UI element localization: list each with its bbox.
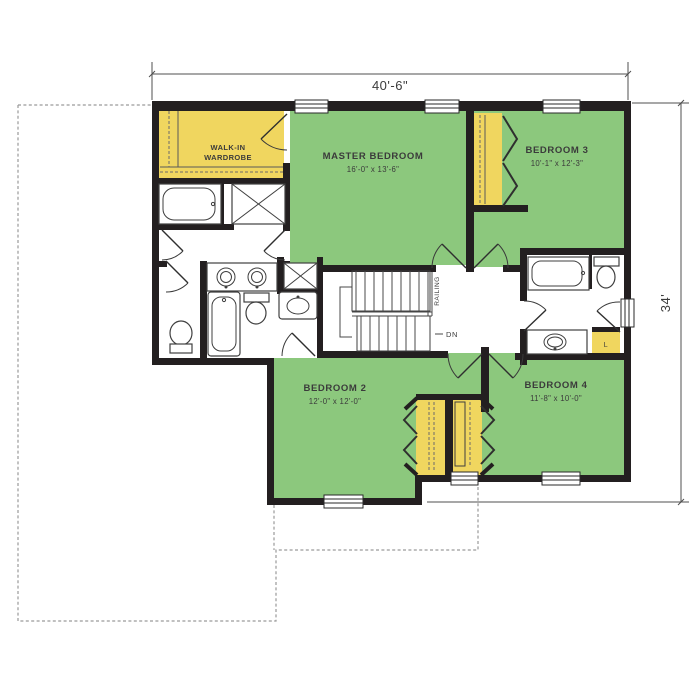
bathtub-icon: [528, 257, 589, 290]
hall-closet-icon: [284, 263, 317, 289]
window: [451, 472, 478, 485]
master-bedroom-floor: [290, 111, 466, 265]
width-dimension-label: 40'-6": [372, 78, 408, 93]
bedroom2-floor: [274, 358, 421, 498]
bedroom4-floor: [481, 353, 624, 475]
bedroom2-size: 12'-0" x 12'-0": [309, 397, 361, 406]
double-sink-vanity-icon: [207, 263, 277, 291]
height-dimension-label: 34': [658, 294, 673, 312]
toilet-icon: [594, 257, 619, 288]
bedroom4-label: BEDROOM 4: [525, 380, 588, 391]
bedroom4-size: 11'-8" x 10'-0": [530, 394, 582, 403]
bath-hall-door: [162, 230, 183, 260]
window: [425, 100, 459, 113]
wardrobe-label: WALK-IN: [211, 143, 246, 152]
bathroom-door: [524, 301, 546, 331]
master-suite-door: [264, 230, 285, 260]
bedroom3-label: BEDROOM 3: [526, 145, 589, 156]
master-bedroom-label: MASTER BEDROOM: [323, 151, 424, 162]
bathtub-icon: [159, 184, 221, 224]
wc-door: [166, 261, 188, 292]
family-bath-door: [282, 333, 315, 356]
toilet-icon: [244, 293, 269, 324]
bedroom2-label: BEDROOM 2: [304, 383, 367, 394]
window: [324, 495, 363, 508]
bedroom3-vestibule-floor: [472, 211, 527, 267]
stairs-down-label: DN: [446, 330, 458, 339]
sink-icon: [279, 292, 317, 319]
window: [543, 100, 580, 113]
linen-closet-label: L: [604, 342, 609, 349]
master-bedroom-size: 16'-0" x 13'-6": [347, 165, 399, 174]
shower-icon: [232, 184, 285, 224]
sink-icon: [527, 330, 587, 354]
bedroom3-size: 10'-1" x 12'-3": [531, 159, 583, 168]
toilet-icon: [170, 321, 192, 353]
floor-plan: 40'-6" 34' WALK-IN WARDROBE MASTER BEDRO…: [0, 0, 700, 700]
window: [295, 100, 328, 113]
bathtub-icon: [208, 292, 240, 356]
staircase: [340, 271, 443, 351]
bedroom3-closet: [472, 113, 502, 206]
window: [621, 299, 634, 327]
railing-label: RAILING: [434, 276, 441, 306]
wardrobe-label: WARDROBE: [204, 153, 252, 162]
window: [542, 472, 580, 485]
